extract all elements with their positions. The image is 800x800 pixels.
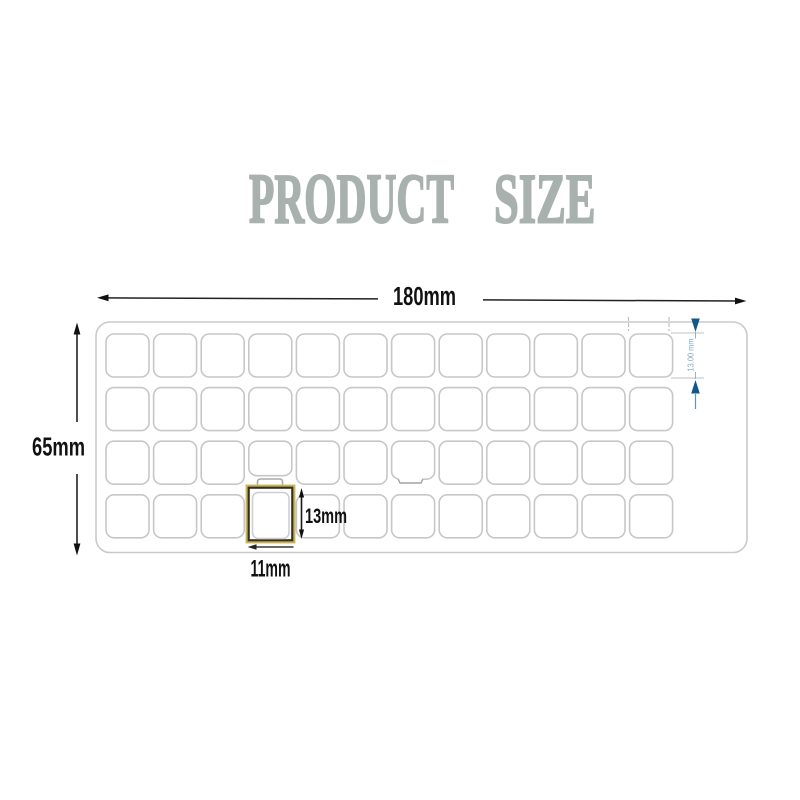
svg-text:11mm: 11mm: [251, 556, 291, 583]
svg-text:13.00 mm: 13.00 mm: [686, 339, 696, 372]
svg-text:65mm: 65mm: [32, 431, 85, 461]
svg-text:13mm: 13mm: [305, 504, 347, 528]
svg-text:SIZE: SIZE: [494, 161, 596, 239]
svg-text:PRODUCT: PRODUCT: [249, 161, 454, 239]
svg-text:180mm: 180mm: [393, 283, 456, 311]
